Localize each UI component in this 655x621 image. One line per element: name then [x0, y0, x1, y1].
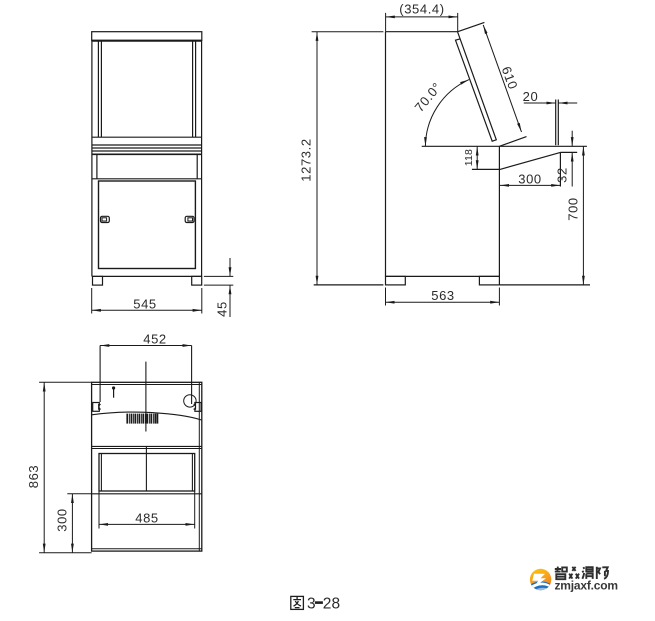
svg-text:545: 545: [133, 296, 157, 311]
svg-text:20: 20: [523, 89, 539, 104]
svg-text:700: 700: [566, 197, 581, 221]
svg-text:28: 28: [323, 596, 341, 613]
svg-text:300: 300: [518, 171, 542, 186]
svg-text:863: 863: [26, 465, 41, 489]
svg-text:45: 45: [215, 301, 230, 317]
svg-text:32: 32: [555, 167, 570, 183]
svg-text:452: 452: [143, 332, 167, 347]
svg-text:zmjaxf.com: zmjaxf.com: [555, 578, 618, 592]
svg-text:118: 118: [463, 149, 475, 166]
svg-text:300: 300: [54, 508, 69, 532]
svg-text:70.0°: 70.0°: [412, 79, 445, 114]
svg-text:3: 3: [307, 596, 316, 613]
svg-text:563: 563: [431, 288, 455, 303]
svg-text:485: 485: [135, 510, 159, 525]
svg-text:610: 610: [499, 64, 521, 91]
svg-text:(354.4): (354.4): [399, 1, 444, 16]
svg-text:1273.2: 1273.2: [299, 138, 314, 181]
